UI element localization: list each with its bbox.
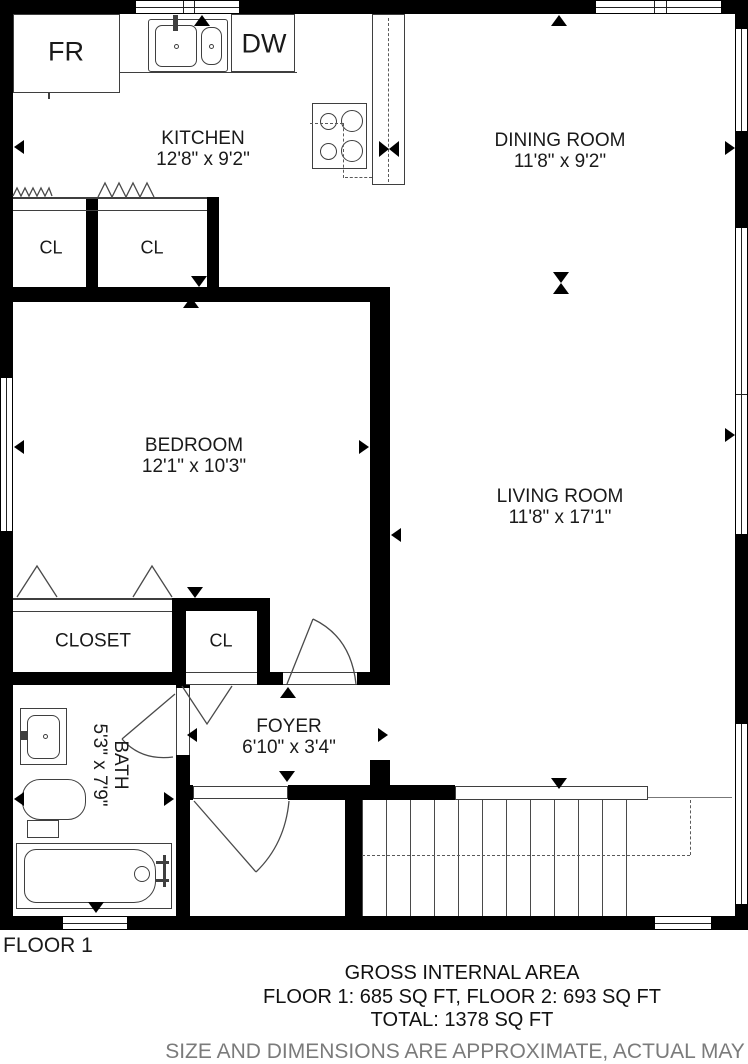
- refrigerator-label: FR: [48, 42, 84, 63]
- dimension-arrow: [183, 297, 199, 308]
- closet-rod: [13, 188, 52, 196]
- floor-plan: FR DW KITCHEN12'8" x 9'2" DINING ROOM11'…: [0, 0, 748, 930]
- dimension-arrow: [14, 440, 24, 454]
- dimension-arrow: [187, 728, 197, 742]
- summary-total: TOTAL: 1378 SQ FT: [371, 1009, 554, 1032]
- dishwasher-label: DW: [242, 34, 287, 55]
- room-label-dining: DINING ROOM11'8" x 9'2": [495, 130, 626, 172]
- dimension-arrow: [725, 428, 735, 442]
- dimension-arrow: [725, 141, 735, 155]
- dimension-arrow: [551, 778, 567, 789]
- closet-door-triangle: [133, 566, 172, 597]
- dimension-arrow: [164, 792, 174, 806]
- dimension-arrow: [280, 687, 296, 698]
- room-label-bath: BATH5'3" x 7'9": [89, 723, 131, 806]
- room-label-closet-foyer: CL: [209, 631, 232, 652]
- dimension-bowtie: [553, 283, 569, 294]
- dimension-arrow: [194, 15, 210, 26]
- dimension-arrow: [378, 728, 388, 742]
- dimension-arrow: [551, 15, 567, 26]
- dimension-arrow: [191, 276, 207, 287]
- room-label-bedroom: BEDROOM12'1" x 10'3": [142, 435, 246, 477]
- closet-door-triangle: [17, 566, 57, 597]
- dimension-bowtie: [553, 272, 569, 283]
- summary-title: GROSS INTERNAL AREA: [345, 962, 580, 985]
- floor-plan-page: { "plan": { "floor_label": "FLOOR 1", "r…: [0, 0, 748, 1061]
- room-label-closet-1: CL: [39, 238, 62, 259]
- room-label-closet-2: CL: [140, 238, 163, 259]
- dimension-bowtie: [389, 141, 399, 157]
- dimension-arrow: [14, 792, 24, 806]
- closet-rod: [98, 183, 154, 197]
- room-label-foyer: FOYER6'10" x 3'4": [242, 716, 336, 758]
- floor-label: FLOOR 1: [3, 934, 93, 958]
- dimension-arrow: [391, 528, 401, 542]
- summary-floors: FLOOR 1: 685 SQ FT, FLOOR 2: 693 SQ FT: [263, 986, 661, 1009]
- dimension-bowtie: [379, 141, 389, 157]
- dimension-arrow: [14, 140, 24, 154]
- door-arc: [256, 801, 289, 872]
- room-label-living: LIVING ROOM11'8" x 17'1": [497, 486, 624, 528]
- dimension-arrow: [187, 587, 203, 598]
- door-arc: [194, 801, 256, 872]
- dimension-arrow: [88, 902, 104, 913]
- dimension-arrow: [359, 440, 369, 454]
- dimension-arrow: [279, 771, 295, 782]
- room-label-kitchen: KITCHEN12'8" x 9'2": [156, 128, 250, 170]
- room-label-closet-main: CLOSET: [55, 631, 131, 652]
- door-arc: [287, 619, 313, 684]
- summary-disclaimer: SIZE AND DIMENSIONS ARE APPROXIMATE, ACT…: [165, 1040, 745, 1064]
- door-arc: [313, 619, 356, 684]
- closet-door-fold: [182, 686, 232, 724]
